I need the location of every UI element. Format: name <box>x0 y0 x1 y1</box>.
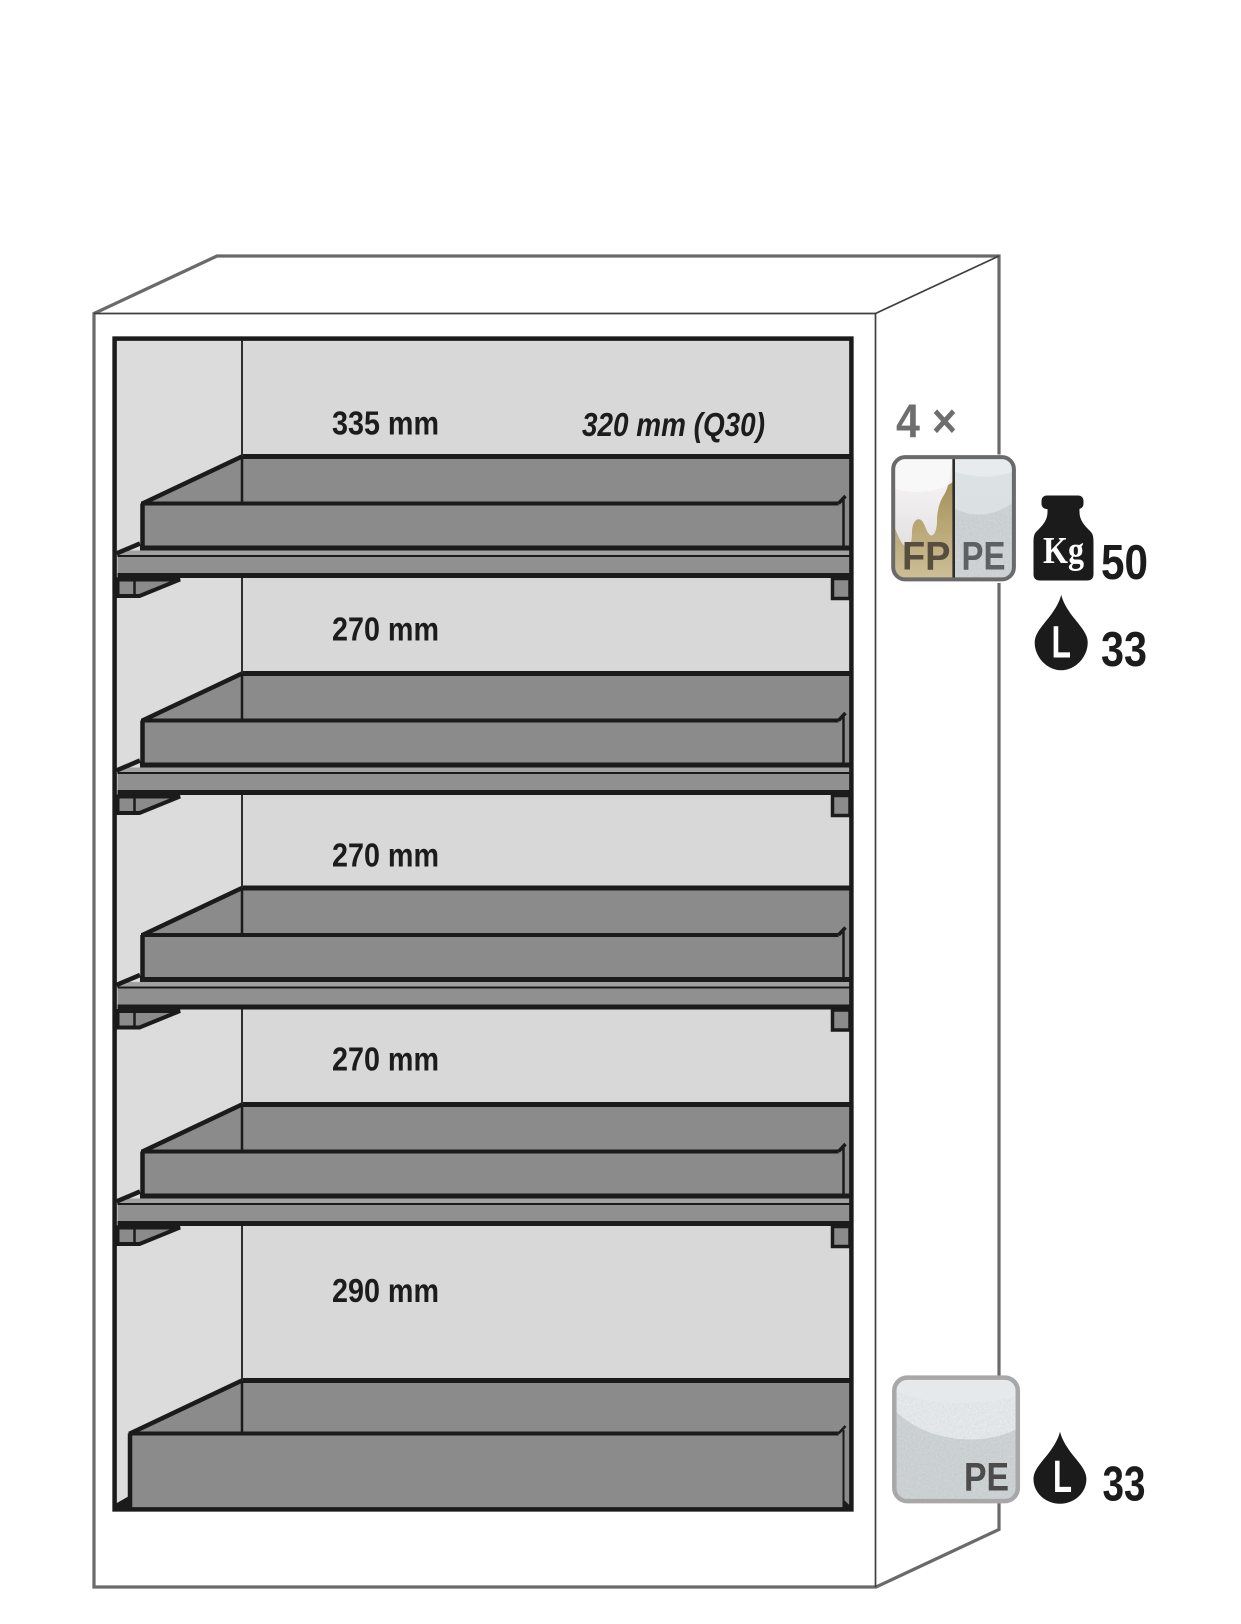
svg-text:L: L <box>1052 617 1072 668</box>
svg-text:290 mm: 290 mm <box>332 1273 439 1310</box>
svg-text:Kg: Kg <box>1043 530 1084 572</box>
svg-text:PE: PE <box>964 1456 1009 1500</box>
svg-text:320 mm (Q30): 320 mm (Q30) <box>582 407 765 444</box>
svg-text:33: 33 <box>1103 1458 1146 1512</box>
svg-text:50: 50 <box>1101 536 1148 590</box>
svg-text:PE: PE <box>962 535 1006 579</box>
svg-text:335 mm: 335 mm <box>332 406 439 443</box>
svg-text:L: L <box>1053 1451 1072 1502</box>
svg-text:33: 33 <box>1101 623 1147 677</box>
svg-text:270 mm: 270 mm <box>332 838 439 875</box>
svg-text:FP: FP <box>902 535 951 579</box>
svg-text:270 mm: 270 mm <box>332 1042 439 1079</box>
svg-text:270 mm: 270 mm <box>332 612 439 649</box>
svg-text:4 ×: 4 × <box>896 395 957 448</box>
